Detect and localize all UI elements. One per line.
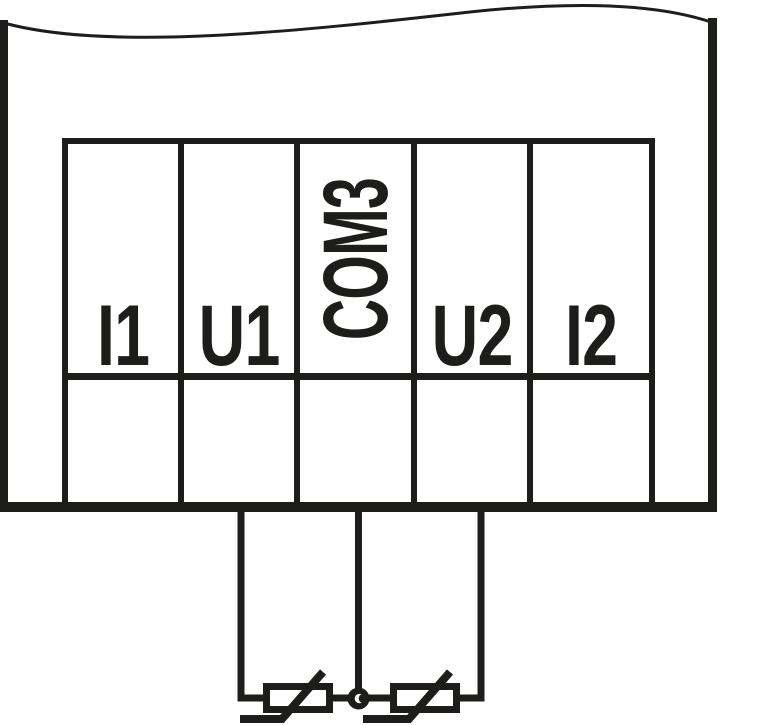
terminal-cell-u1: U1 [184,144,300,380]
terminal-cell-com3: COM3 [300,144,416,380]
terminal-label-i1: I1 [82,293,165,379]
terminal-label-com3: COM3 [310,177,402,339]
torn-top-edge [4,6,711,38]
wire-u1 [241,505,266,698]
wire-u2 [456,505,481,698]
terminal-block: I1 U1 COM3 U2 I2 [62,138,655,502]
terminal-slot-u2 [417,380,533,502]
device-right-edge [708,18,717,512]
terminal-cell-u2: U2 [417,144,533,380]
junction-dot [348,688,370,710]
device-left-edge [0,20,8,512]
terminal-slot-com3 [300,380,416,502]
terminal-slot-i1 [68,380,184,502]
terminal-label-u1: U1 [198,293,281,379]
wiring-diagram: I1 U1 COM3 U2 I2 [0,0,775,725]
terminal-cell-i2: I2 [533,144,649,380]
sensor-wiring [241,505,481,698]
terminal-cell-i1: I1 [68,144,184,380]
terminal-slot-i2 [533,380,649,502]
terminal-slot-u1 [184,380,300,502]
terminal-label-u2: U2 [430,293,513,379]
terminal-label-i2: I2 [547,293,634,379]
